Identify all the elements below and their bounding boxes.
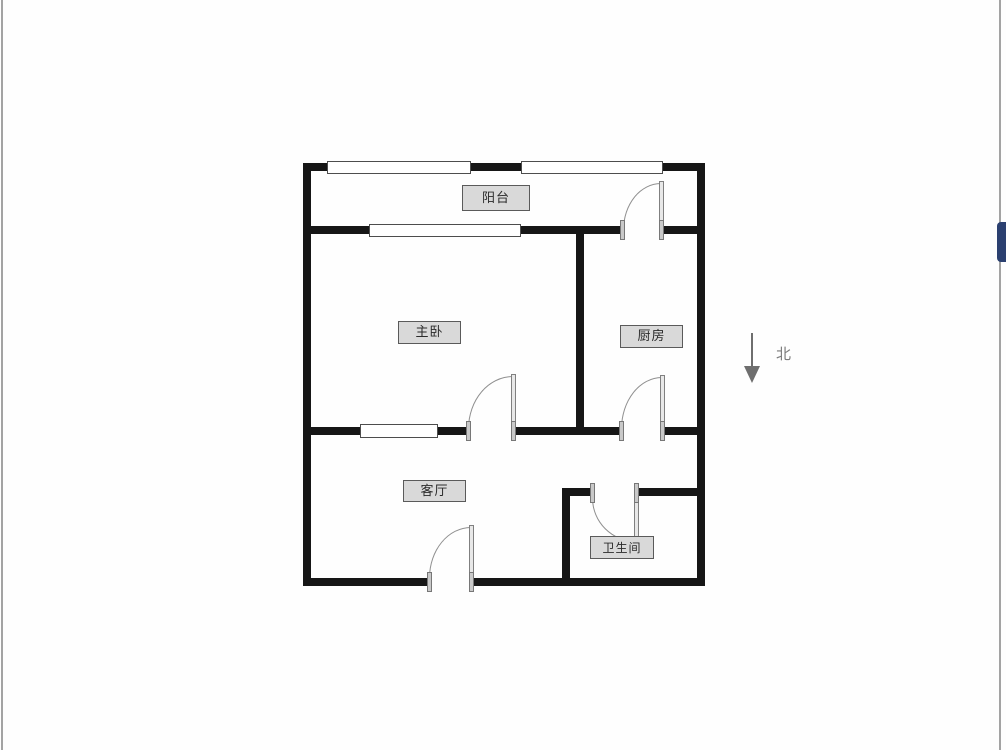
door-balcony-jamb-right: [659, 220, 664, 240]
window-living-room: [360, 424, 438, 438]
north-arrowhead-icon: [744, 366, 760, 383]
door-entry-arc: [429, 527, 471, 578]
next-image-peek[interactable]: [997, 222, 1006, 262]
door-balcony-jamb-left: [620, 220, 625, 240]
door-bedroom-arc: [468, 376, 513, 429]
door-bedroom-jamb-left: [466, 421, 471, 441]
window-top-left: [327, 161, 471, 174]
floorplan-viewer: 阳台 主卧 厨房 客厅 卫生间 北: [0, 0, 1006, 750]
door-balcony-arc: [623, 183, 661, 230]
wall-outer-right: [697, 163, 705, 586]
north-arrow-icon: [751, 333, 753, 366]
window-top-right: [521, 161, 663, 174]
wall-bathroom-left: [562, 488, 570, 578]
door-gap-entry: [430, 578, 471, 586]
wall-outer-bottom: [303, 578, 705, 586]
north-label: 北: [776, 347, 791, 362]
wall-outer-left: [303, 163, 311, 586]
door-bathroom-jamb-left: [590, 483, 595, 503]
door-gap-bathroom: [593, 488, 635, 496]
door-kitchen-jamb-left: [619, 421, 624, 441]
north-indicator: 北: [738, 328, 808, 392]
left-edge-divider: [1, 0, 3, 750]
door-entry-jamb-right: [469, 572, 474, 592]
room-label-living-room: 客厅: [403, 480, 466, 502]
door-bedroom-jamb-right: [511, 421, 516, 441]
room-label-master-bedroom: 主卧: [398, 321, 461, 344]
window-bedroom: [369, 224, 521, 237]
door-kitchen-arc: [621, 377, 662, 429]
room-label-balcony: 阳台: [462, 185, 530, 211]
door-kitchen-jamb-right: [660, 421, 665, 441]
door-entry-jamb-left: [427, 572, 432, 592]
wall-kitchen-divider: [576, 234, 584, 427]
room-label-bathroom: 卫生间: [590, 536, 654, 559]
room-label-kitchen: 厨房: [620, 325, 683, 348]
right-edge-divider: [999, 0, 1001, 750]
door-bathroom-jamb-right: [634, 483, 639, 503]
